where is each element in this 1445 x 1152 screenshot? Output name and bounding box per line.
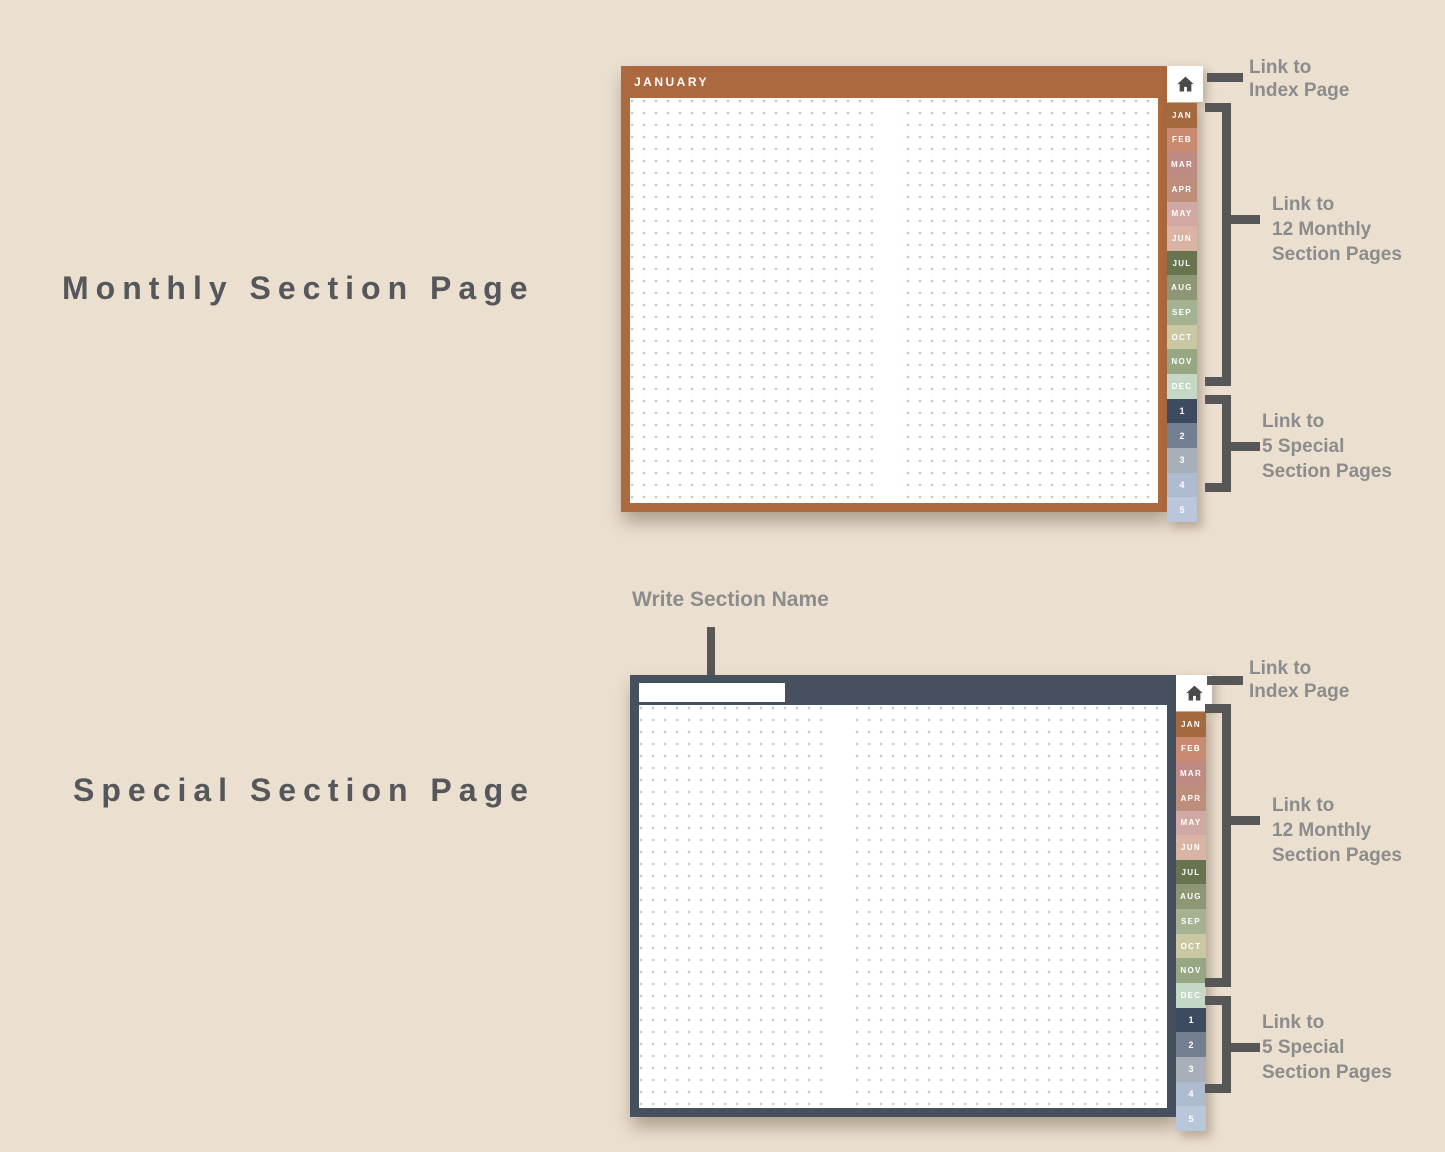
page-gutter <box>873 98 897 503</box>
annotation-index-page: Link to Index Page <box>1249 657 1349 703</box>
month-tab-feb[interactable]: FEB <box>1167 128 1197 153</box>
bracket-arm-bottom <box>1205 978 1231 987</box>
tab-stack: JANFEBMARAPRMAYJUNJULAUGSEPOCTNOVDEC1234… <box>1167 103 1197 522</box>
bracket-stem <box>1222 395 1231 492</box>
month-tab-oct[interactable]: OCT <box>1167 325 1197 350</box>
annotation-special-pages: Link to 5 Special Section Pages <box>1262 409 1392 484</box>
home-icon <box>1175 74 1196 95</box>
bracket-monthly-tabs <box>1205 704 1260 987</box>
month-tab-jun[interactable]: JUN <box>1167 226 1197 251</box>
bracket-special-tabs <box>1205 395 1260 492</box>
month-tab-aug[interactable]: AUG <box>1176 884 1206 909</box>
special-tab-3[interactable]: 3 <box>1167 448 1197 473</box>
bracket-stem <box>1222 103 1231 386</box>
bracket-special-tabs <box>1205 996 1260 1093</box>
monthly-page-title: Monthly Section Page <box>62 270 534 307</box>
month-tab-apr[interactable]: APR <box>1176 786 1206 811</box>
annotation-line: Section Pages <box>1272 843 1402 868</box>
bracket-stem <box>1222 996 1231 1093</box>
annotation-line: Index Page <box>1249 79 1349 102</box>
month-tab-dec[interactable]: DEC <box>1176 983 1206 1008</box>
month-name-header: JANUARY <box>634 66 709 98</box>
bracket-tick <box>1231 215 1260 224</box>
special-tab-1[interactable]: 1 <box>1176 1008 1206 1033</box>
special-tab-1[interactable]: 1 <box>1167 399 1197 424</box>
month-tab-nov[interactable]: NOV <box>1167 349 1197 374</box>
month-tab-may[interactable]: MAY <box>1167 202 1197 227</box>
annotation-line: 12 Monthly <box>1272 818 1402 843</box>
special-tab-2[interactable]: 2 <box>1167 423 1197 448</box>
annotation-line: Link to <box>1272 793 1402 818</box>
bracket-tick <box>1231 442 1260 451</box>
bracket-monthly-tabs <box>1205 103 1260 386</box>
special-tab-4[interactable]: 4 <box>1167 473 1197 498</box>
month-tab-mar[interactable]: MAR <box>1167 152 1197 177</box>
annotation-line: Section Pages <box>1272 242 1402 267</box>
monthly-dot-grid-page <box>630 98 1158 503</box>
special-tab-2[interactable]: 2 <box>1176 1032 1206 1057</box>
month-tab-may[interactable]: MAY <box>1176 811 1206 836</box>
month-tab-jan[interactable]: JAN <box>1167 103 1197 128</box>
bracket-tick <box>1231 816 1260 825</box>
monthly-tab-rail: JANFEBMARAPRMAYJUNJULAUGSEPOCTNOVDEC1234… <box>1167 66 1203 522</box>
section-name-input[interactable] <box>639 683 785 702</box>
bracket-arm-bottom <box>1205 483 1231 492</box>
month-tab-apr[interactable]: APR <box>1167 177 1197 202</box>
annotation-line: 12 Monthly <box>1272 217 1402 242</box>
month-tab-jun[interactable]: JUN <box>1176 835 1206 860</box>
annotation-index-page: Link to Index Page <box>1249 56 1349 102</box>
month-tab-mar[interactable]: MAR <box>1176 761 1206 786</box>
connector-index-line <box>1207 676 1243 685</box>
annotation-line: Section Pages <box>1262 1060 1392 1085</box>
home-button[interactable] <box>1167 66 1203 102</box>
bracket-stem <box>1222 704 1231 987</box>
special-section-page <box>630 675 1176 1117</box>
tab-stack: JANFEBMARAPRMAYJUNJULAUGSEPOCTNOVDEC1234… <box>1176 712 1206 1131</box>
annotation-line: 5 Special <box>1262 1035 1392 1060</box>
month-tab-sep[interactable]: SEP <box>1176 909 1206 934</box>
month-tab-feb[interactable]: FEB <box>1176 737 1206 762</box>
connector-index-line <box>1207 73 1243 82</box>
bracket-arm-bottom <box>1205 377 1231 386</box>
special-page-title: Special Section Page <box>73 772 535 809</box>
special-tab-5[interactable]: 5 <box>1176 1106 1206 1131</box>
write-section-name-label: Write Section Name <box>632 588 829 612</box>
annotation-line: Link to <box>1249 657 1349 680</box>
month-tab-nov[interactable]: NOV <box>1176 958 1206 983</box>
annotation-line: Index Page <box>1249 680 1349 703</box>
special-dot-grid-page <box>639 705 1167 1108</box>
annotation-monthly-pages: Link to 12 Monthly Section Pages <box>1272 793 1402 868</box>
annotation-line: Link to <box>1272 192 1402 217</box>
bracket-arm-bottom <box>1205 1084 1231 1093</box>
special-tab-5[interactable]: 5 <box>1167 497 1197 522</box>
month-tab-aug[interactable]: AUG <box>1167 275 1197 300</box>
bracket-arm-top <box>1205 103 1231 112</box>
month-tab-dec[interactable]: DEC <box>1167 374 1197 399</box>
annotation-line: Link to <box>1249 56 1349 79</box>
annotation-line: Section Pages <box>1262 459 1392 484</box>
home-icon <box>1184 683 1205 704</box>
bracket-tick <box>1231 1043 1260 1052</box>
page-gutter <box>829 705 853 1108</box>
month-tab-sep[interactable]: SEP <box>1167 300 1197 325</box>
monthly-section-page: JANUARY <box>621 66 1167 512</box>
bracket-arm-top <box>1205 996 1231 1005</box>
month-tab-oct[interactable]: OCT <box>1176 934 1206 959</box>
annotation-line: Link to <box>1262 1010 1392 1035</box>
month-tab-jul[interactable]: JUL <box>1167 251 1197 276</box>
special-tab-3[interactable]: 3 <box>1176 1057 1206 1082</box>
bracket-arm-top <box>1205 704 1231 713</box>
annotation-line: 5 Special <box>1262 434 1392 459</box>
annotation-line: Link to <box>1262 409 1392 434</box>
special-tab-4[interactable]: 4 <box>1176 1082 1206 1107</box>
showcase-canvas: Monthly Section Page Special Section Pag… <box>0 0 1445 1152</box>
bracket-arm-top <box>1205 395 1231 404</box>
annotation-special-pages: Link to 5 Special Section Pages <box>1262 1010 1392 1085</box>
annotation-monthly-pages: Link to 12 Monthly Section Pages <box>1272 192 1402 267</box>
month-tab-jul[interactable]: JUL <box>1176 860 1206 885</box>
month-tab-jan[interactable]: JAN <box>1176 712 1206 737</box>
